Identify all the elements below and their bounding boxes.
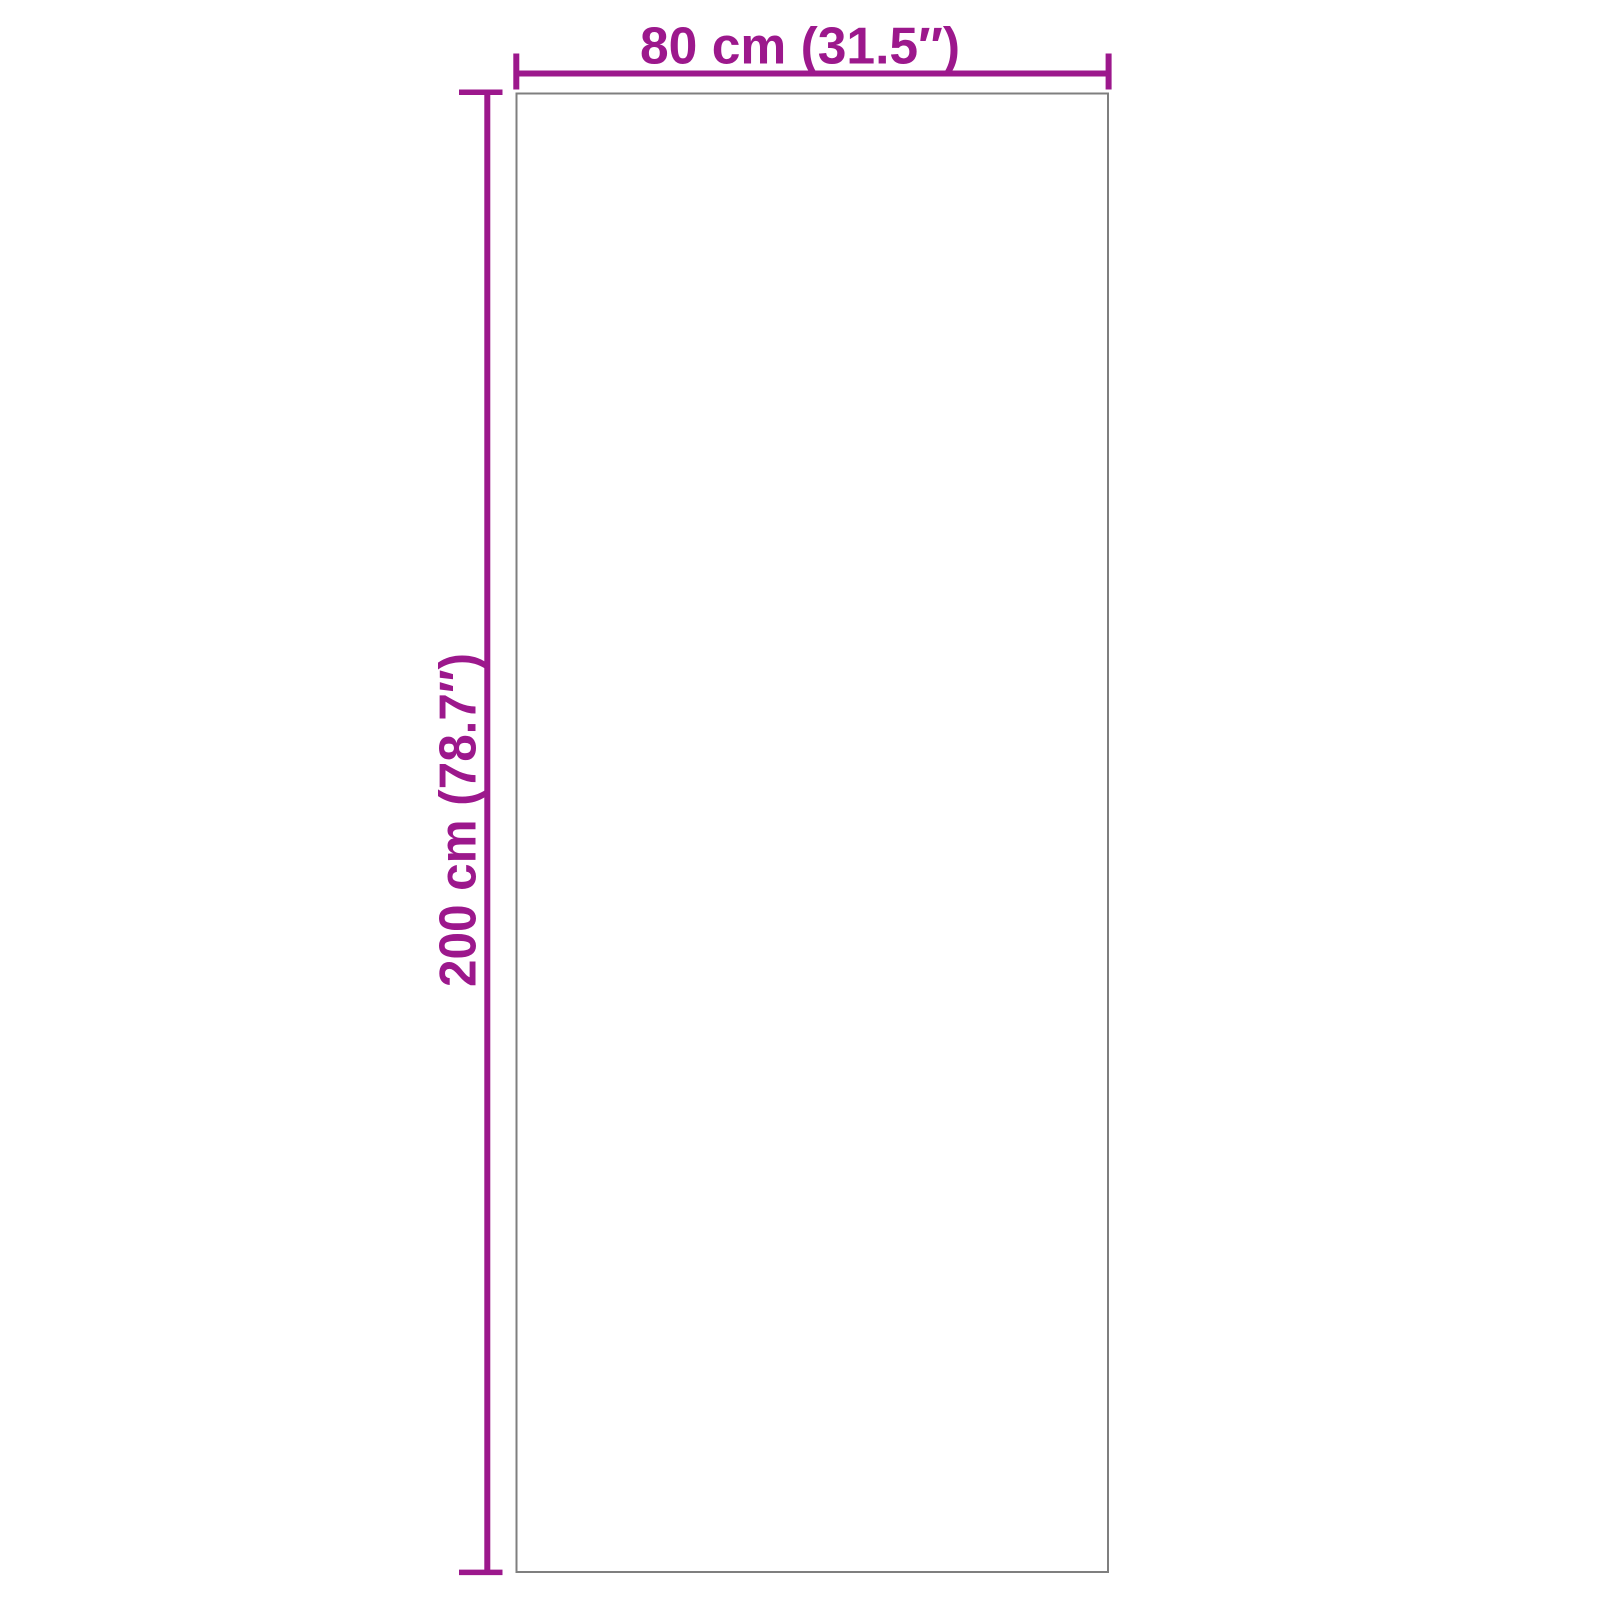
svg-text:80 cm (31.5″): 80 cm (31.5″) [640, 18, 960, 76]
svg-text:200 cm (78.7″): 200 cm (78.7″) [430, 653, 488, 987]
